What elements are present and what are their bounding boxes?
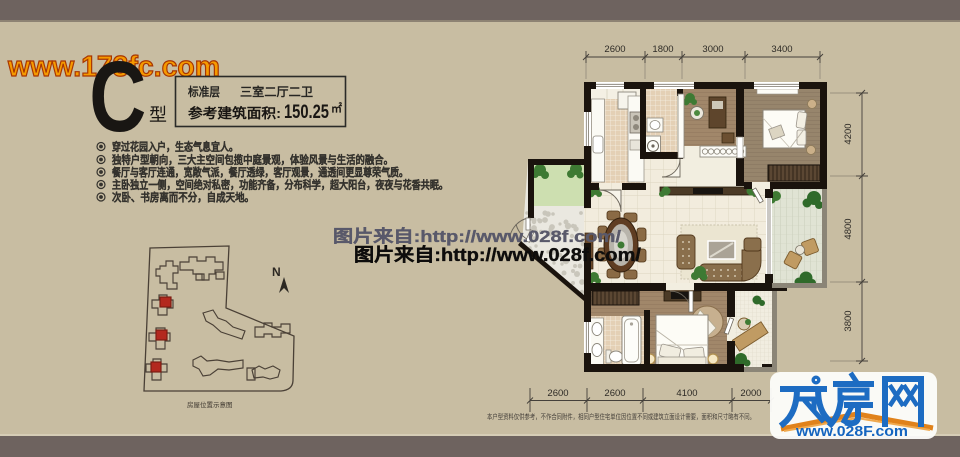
svg-text:N: N [272, 265, 281, 279]
svg-text:次卧、书房离而不分，自成天地。: 次卧、书房离而不分，自成天地。 [112, 190, 254, 204]
svg-text:㎡: ㎡ [331, 101, 342, 115]
svg-text:2600: 2600 [547, 388, 568, 399]
svg-text:3000: 3000 [702, 44, 723, 55]
svg-text:房屋位置示意图: 房屋位置示意图 [187, 400, 233, 409]
svg-text:3400: 3400 [771, 44, 792, 55]
svg-text:型: 型 [149, 105, 167, 125]
svg-text:图片来自:http://www.028f.com/: 图片来自:http://www.028f.com/ [333, 226, 621, 246]
svg-text:4800: 4800 [843, 218, 854, 239]
svg-text:三室二厅二卫: 三室二厅二卫 [240, 84, 313, 99]
svg-text:1800: 1800 [652, 44, 673, 55]
svg-text:C: C [89, 41, 146, 153]
svg-text:参考建筑面积:: 参考建筑面积: [188, 105, 281, 121]
svg-text:www.028F.com: www.028F.com [795, 424, 908, 440]
svg-text:穿过花园入户，生态气息宜人。: 穿过花园入户，生态气息宜人。 [112, 140, 238, 154]
svg-text:主卧独立一侧，空间绝对私密，功能齐备，分布科学，超大阳台，夜: 主卧独立一侧，空间绝对私密，功能齐备，分布科学，超大阳台，夜夜与花香共眠。 [112, 178, 448, 192]
svg-text:2000: 2000 [740, 388, 761, 399]
svg-text:2600: 2600 [604, 44, 625, 55]
svg-text:图片来自:http://www.028f.com/: 图片来自:http://www.028f.com/ [354, 244, 641, 265]
svg-text:3800: 3800 [843, 310, 854, 331]
svg-text:标准层: 标准层 [187, 84, 220, 99]
svg-text:本户型资料仅供参考，不作合同附件，相同户型住宅单位因位置不同: 本户型资料仅供参考，不作合同附件，相同户型住宅单位因位置不同或建筑立面设计需要，… [487, 412, 755, 421]
svg-text:餐厅与客厅连通，宽敞气派，餐厅透绿，客厅观景，通透间更显尊荣: 餐厅与客厅连通，宽敞气派，餐厅透绿，客厅观景，通透间更显尊荣气质。 [111, 165, 408, 179]
svg-text:150.25: 150.25 [284, 102, 329, 123]
svg-text:4200: 4200 [843, 123, 854, 144]
svg-text:独特户型朝向，三大主空间包揽中庭景观，体验风景与生活的融合。: 独特户型朝向，三大主空间包揽中庭景观，体验风景与生活的融合。 [111, 153, 393, 167]
svg-text:2600: 2600 [604, 388, 625, 399]
svg-text:4100: 4100 [676, 388, 697, 399]
